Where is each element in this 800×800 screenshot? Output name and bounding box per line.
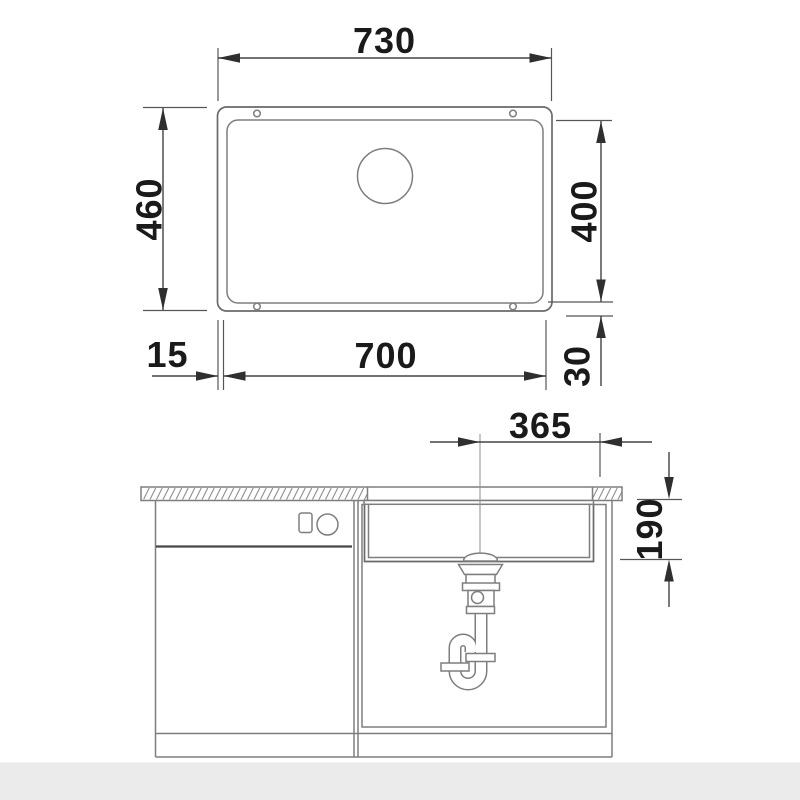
dim-460-label: 460 bbox=[129, 177, 170, 240]
footer-strip bbox=[0, 763, 800, 800]
mounting-holes bbox=[254, 110, 517, 310]
dim-365-label: 365 bbox=[509, 405, 572, 446]
dim-730-label: 730 bbox=[353, 20, 416, 61]
drain-hole bbox=[358, 149, 413, 204]
dim-bottom-offset: 30 bbox=[557, 316, 614, 387]
sink-bowl-section bbox=[364, 501, 594, 562]
sink-flange bbox=[364, 501, 594, 505]
union-nut-3 bbox=[466, 654, 495, 662]
dim-400-label: 400 bbox=[564, 179, 605, 242]
control-switch bbox=[299, 513, 312, 533]
top-view: 730 460 400 700 bbox=[129, 20, 614, 390]
sink-bowl-edge bbox=[227, 120, 543, 303]
strainer-flange bbox=[459, 565, 503, 575]
p-trap-pipe bbox=[455, 610, 481, 684]
countertop-hatch-right bbox=[593, 488, 622, 500]
dim-drain-to-edge: 365 bbox=[430, 405, 652, 477]
dim-30-label: 30 bbox=[557, 345, 598, 387]
control-knob bbox=[317, 514, 338, 535]
union-nut-1 bbox=[463, 583, 500, 591]
dim-overall-depth: 460 bbox=[129, 108, 208, 311]
dim-side-offset: 15 bbox=[146, 334, 218, 381]
sink-dimension-drawing: 730 460 400 700 bbox=[0, 0, 800, 800]
dim-bowl-height: 190 bbox=[620, 452, 682, 607]
countertop-hatch-left bbox=[144, 488, 368, 500]
technical-drawing-canvas: 730 460 400 700 bbox=[0, 0, 800, 800]
dim-15-label: 15 bbox=[146, 334, 188, 375]
union-nut-2 bbox=[467, 607, 495, 614]
union-nut-4 bbox=[441, 663, 469, 671]
dim-bowl-depth: 400 bbox=[548, 121, 613, 303]
dim-190-label: 190 bbox=[629, 497, 670, 560]
sink-outer-edge bbox=[218, 107, 553, 311]
countertop bbox=[141, 487, 622, 501]
front-view: 365 190 bbox=[141, 405, 682, 757]
dim-bowl-width: 700 bbox=[218, 320, 546, 390]
strainer-neck bbox=[466, 575, 495, 584]
dim-outer-width: 730 bbox=[218, 20, 552, 101]
dim-700-label: 700 bbox=[354, 335, 417, 376]
